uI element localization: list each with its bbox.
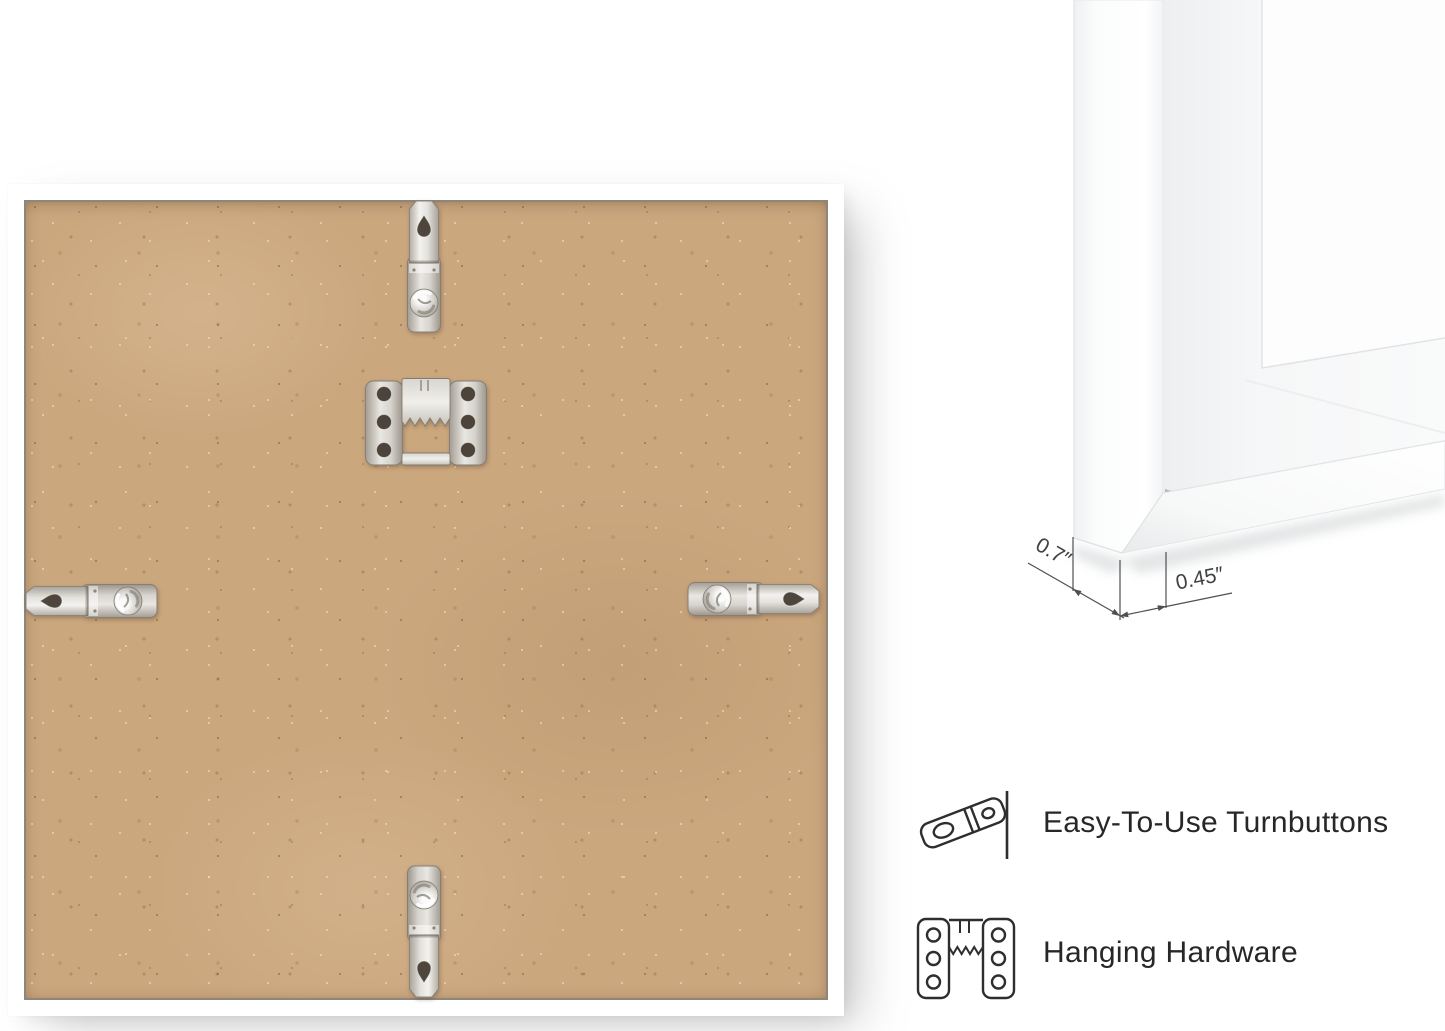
turnbutton-top <box>406 200 442 333</box>
turnbutton-bottom <box>406 865 442 998</box>
depth-dimension-label: 0.7″ <box>1032 533 1076 572</box>
sawtooth-hanger-icon <box>916 910 1016 1002</box>
sawtooth-hanger <box>365 378 487 467</box>
feature-label-turnbuttons: Easy-To-Use Turnbuttons <box>1043 806 1388 840</box>
turnbutton-left <box>25 583 158 619</box>
frame-corner-closeup-photo: 0.7″ 0.45″ <box>1020 0 1445 660</box>
face-width-dimension-label: 0.45″ <box>1174 563 1226 595</box>
frame-back-photo <box>8 184 844 1016</box>
turnbutton-icon <box>903 783 1021 867</box>
feature-label-hanging-hardware: Hanging Hardware <box>1043 936 1298 970</box>
mat-window <box>1262 0 1445 368</box>
turnbutton-right <box>687 581 820 617</box>
frame-side-panel <box>1074 0 1163 553</box>
